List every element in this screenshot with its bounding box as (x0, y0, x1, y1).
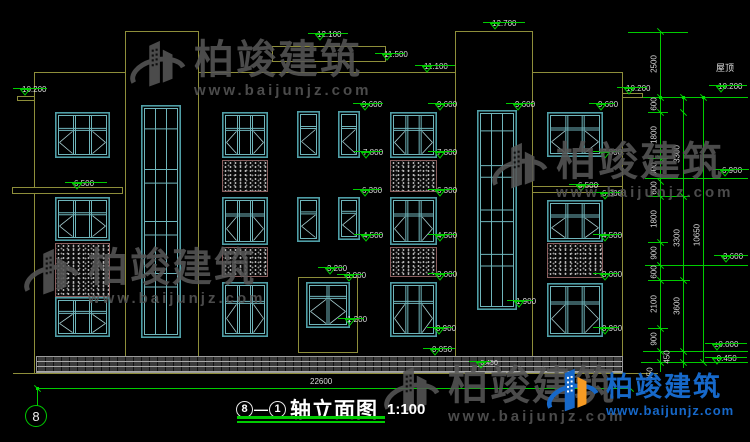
dimension-value: 1800 (650, 210, 659, 228)
wall-line (532, 31, 533, 373)
level-marker: 3.600 (713, 246, 743, 264)
dimension-value: 900 (650, 246, 659, 259)
company-name: 柏竣建筑 (606, 373, 734, 401)
level-marker: 1.900 (506, 291, 536, 309)
level-triangle-icon (514, 301, 524, 308)
watermark-url: www.baijunjz.com (194, 82, 371, 99)
level-triangle-icon (20, 89, 30, 96)
dimension-line (683, 97, 684, 368)
axis-start-bubble: 8 (236, 401, 253, 418)
wall-line (34, 72, 35, 373)
title-underline (237, 416, 385, 419)
level-triangle-icon (513, 104, 523, 111)
level-marker: 11.100 (414, 56, 448, 74)
dimension-value: 3600 (673, 297, 682, 315)
level-triangle-icon (435, 190, 445, 197)
level-triangle-icon (345, 319, 355, 326)
total-width-dimension: 22600 (310, 377, 332, 386)
dimension-line (648, 242, 668, 243)
level-triangle-icon (325, 268, 335, 275)
level-marker: 9.600 (588, 94, 618, 112)
axis-end-bubble: 1 (269, 401, 286, 418)
level-triangle-icon (434, 328, 444, 335)
dimension-line (703, 97, 704, 363)
level-marker: 3.000 (336, 265, 366, 283)
level-marker: 0.050 (422, 339, 452, 357)
dimension-line (628, 32, 688, 33)
level-triangle-icon (600, 328, 610, 335)
roof-line (455, 31, 532, 32)
watermark-url: www.baijunjz.com (556, 184, 733, 201)
watermark-name: 柏竣建筑 (556, 142, 733, 182)
level-marker: 12.700 (482, 13, 516, 31)
level-marker: 3.000 (592, 264, 622, 282)
level-marker: -0.450 (704, 348, 737, 366)
dimension-line (648, 328, 668, 329)
window-w3 (55, 112, 110, 158)
roof-line (125, 31, 198, 32)
dimension-value: 2500 (650, 55, 659, 73)
title-text: 轴立面图 (290, 394, 378, 424)
roof-line (34, 72, 125, 73)
level-marker: 4.500 (353, 225, 383, 243)
watermark-logo-icon (20, 246, 82, 308)
window-w3 (222, 197, 268, 245)
dimension-value: 10650 (693, 224, 702, 246)
dimension-node (702, 96, 705, 99)
level-marker: 0.900 (426, 318, 456, 336)
level-marker: 10.200 (12, 79, 46, 97)
axis-grid-bubble-8: 8 (25, 405, 47, 427)
window-w2 (297, 111, 320, 158)
company-url: www.baijunjz.com (606, 403, 734, 418)
level-triangle-icon (600, 274, 610, 281)
level-triangle-icon (435, 235, 445, 242)
level-marker: 9.600 (505, 94, 535, 112)
level-triangle-icon (360, 104, 370, 111)
watermark: 柏竣建筑www.baijunjz.com (20, 246, 265, 308)
wall-line (622, 72, 623, 373)
level-marker: 11.500 (374, 44, 408, 62)
level-marker: 6.500 (64, 173, 94, 191)
level-marker: 6.300 (352, 180, 382, 198)
level-triangle-icon (382, 54, 392, 61)
dimension-node (36, 387, 39, 390)
level-marker: 6.300 (427, 180, 457, 198)
level-marker: 9.600 (427, 94, 457, 112)
watermark-logo-icon (126, 38, 188, 100)
stone-spandrel-panel (222, 160, 268, 192)
level-marker: 10.200 (616, 78, 650, 96)
roof-line (532, 72, 622, 73)
level-triangle-icon (596, 104, 606, 111)
window-w3 (55, 197, 110, 241)
level-marker: 7.800 (427, 142, 457, 160)
level-triangle-icon (435, 152, 445, 159)
level-triangle-icon (72, 183, 82, 190)
dimension-node (682, 96, 685, 99)
dimension-value: 900 (650, 332, 659, 345)
watermark-logo-icon (488, 140, 550, 202)
drawing-title: 8 — 1 轴立面图 1:100 (236, 394, 425, 424)
level-triangle-icon (716, 86, 726, 93)
roof-level-label: 屋顶 (716, 61, 734, 74)
company-logo: 柏竣建筑 www.baijunjz.com (543, 366, 734, 424)
level-marker: 0.900 (592, 318, 622, 336)
level-marker: 1.200 (337, 309, 367, 327)
level-triangle-icon (600, 235, 610, 242)
level-triangle-icon (361, 152, 371, 159)
cad-canvas: 8 — 1 轴立面图 1:100 8 22600 屋顶 柏竣建筑 www.bai… (0, 0, 750, 442)
dimension-value: 2100 (650, 295, 659, 313)
watermark: 柏竣建筑www.baijunjz.com (488, 140, 733, 202)
title-scale: 1:100 (387, 401, 425, 418)
level-marker: 10.200 (708, 76, 742, 94)
dimension-node (659, 96, 662, 99)
title-underline-2 (237, 421, 385, 423)
level-triangle-icon (360, 190, 370, 197)
level-triangle-icon (624, 88, 634, 95)
dimension-line (37, 389, 38, 406)
level-triangle-icon (422, 66, 432, 73)
dimension-value: 450 (663, 350, 672, 363)
level-marker: 7.800 (353, 142, 383, 160)
watermark-url: www.baijunjz.com (88, 290, 265, 307)
level-triangle-icon (435, 104, 445, 111)
level-marker: 4.500 (427, 225, 457, 243)
company-logo-icon (543, 366, 601, 424)
level-triangle-icon (721, 256, 731, 263)
window-w2 (297, 197, 320, 242)
window-w3 (222, 112, 268, 158)
level-triangle-icon (435, 274, 445, 281)
level-triangle-icon (712, 358, 722, 365)
level-marker: 3.000 (427, 264, 457, 282)
watermark-name: 柏竣建筑 (88, 248, 265, 288)
level-triangle-icon (490, 23, 500, 30)
level-marker: 4.500 (592, 225, 622, 243)
watermark-name: 柏竣建筑 (194, 40, 371, 80)
axis-range-dash: — (254, 401, 268, 417)
dimension-line (648, 112, 668, 113)
watermark: 柏竣建筑www.baijunjz.com (126, 38, 371, 100)
level-triangle-icon (430, 349, 440, 356)
level-triangle-icon (361, 235, 371, 242)
dimension-value: 3300 (673, 229, 682, 247)
level-triangle-icon (344, 275, 354, 282)
